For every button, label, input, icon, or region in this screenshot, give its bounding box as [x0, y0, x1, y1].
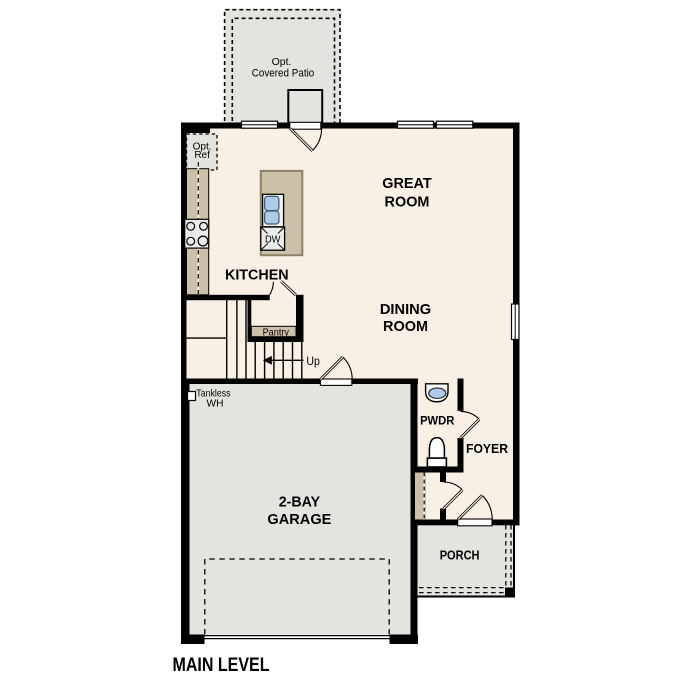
svg-text:ROOM: ROOM: [383, 318, 428, 335]
svg-text:GARAGE: GARAGE: [267, 512, 331, 528]
svg-text:WH: WH: [207, 399, 224, 410]
svg-text:Covered Patio: Covered Patio: [252, 68, 315, 80]
svg-text:DINING: DINING: [380, 301, 431, 318]
svg-text:Ref: Ref: [194, 150, 210, 161]
svg-text:KITCHEN: KITCHEN: [225, 267, 289, 283]
svg-text:Pantry: Pantry: [263, 327, 289, 338]
svg-text:Up: Up: [306, 356, 320, 368]
svg-text:PORCH: PORCH: [440, 549, 480, 563]
svg-text:2-BAY: 2-BAY: [279, 495, 321, 511]
svg-text:GREAT: GREAT: [382, 175, 432, 192]
svg-text:ROOM: ROOM: [385, 194, 430, 211]
svg-text:MAIN LEVEL: MAIN LEVEL: [173, 655, 270, 676]
svg-text:DW: DW: [265, 234, 281, 246]
svg-text:Opt.: Opt.: [272, 56, 292, 68]
svg-text:FOYER: FOYER: [466, 442, 508, 456]
svg-text:PWDR: PWDR: [420, 414, 455, 428]
